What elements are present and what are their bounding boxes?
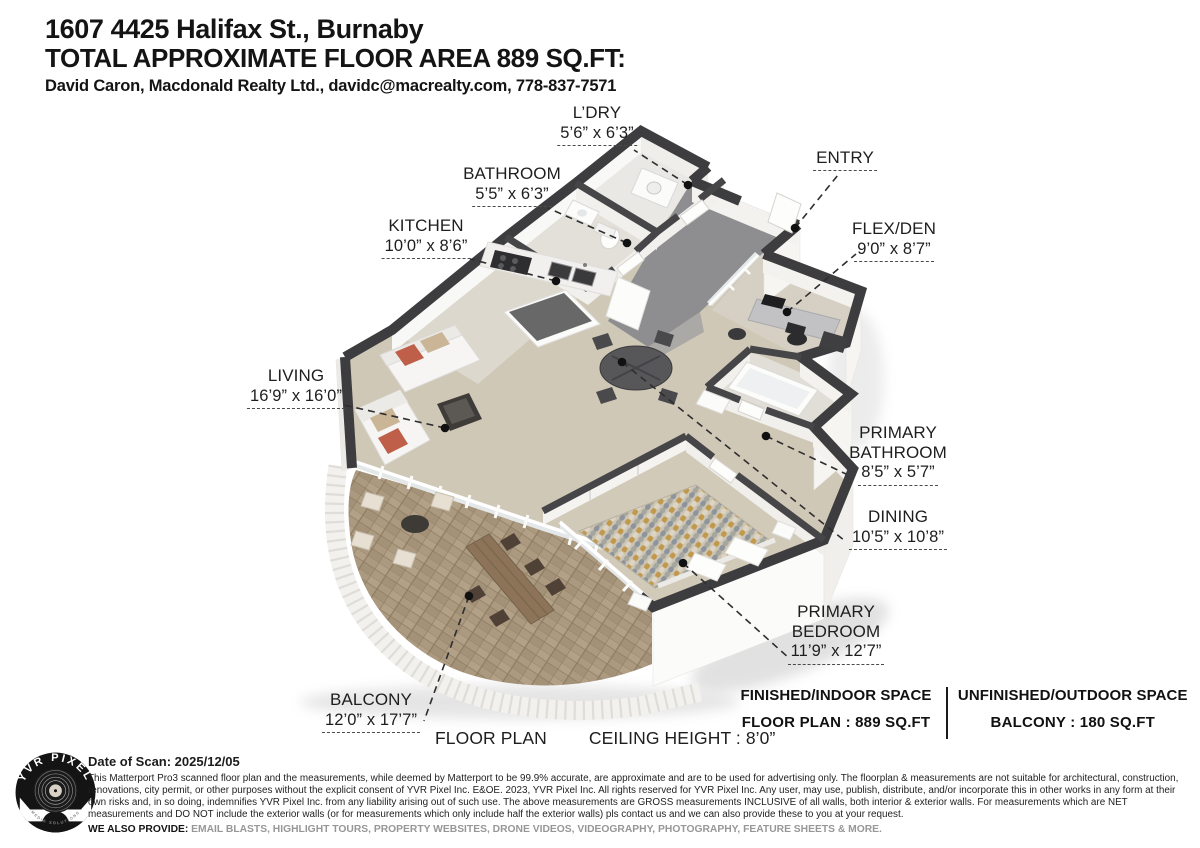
room-label-kitchen: KITCHEN 10’0” x 8’6” xyxy=(382,216,471,259)
indoor-space-title: FINISHED/INDOOR SPACE xyxy=(738,687,934,704)
summary-divider xyxy=(946,687,948,739)
room-label-primary-bathroom: PRIMARY BATHROOM 8’5” x 5’7” xyxy=(834,423,962,486)
logo-icon: YVR PIXEL MEDIA SOLUTIONS xyxy=(13,750,98,835)
patio-table xyxy=(401,515,429,533)
room-label-entry: ENTRY xyxy=(813,147,877,171)
indoor-space-summary: FINISHED/INDOOR SPACE FLOOR PLAN : 889 S… xyxy=(738,687,934,731)
also-provide-items: EMAIL BLASTS, HIGHLIGHT TOURS, PROPERTY … xyxy=(188,824,882,835)
washer-icon xyxy=(647,182,661,194)
area-summary: FINISHED/INDOOR SPACE FLOOR PLAN : 889 S… xyxy=(738,687,1190,739)
page: { "header": { "address": "1607 4425 Hali… xyxy=(0,0,1200,848)
outdoor-space-value: BALCONY : 180 SQ.FT xyxy=(956,714,1191,731)
scan-date: Date of Scan: 2025/12/05 xyxy=(88,754,240,769)
room-label-balcony: BALCONY 12’0” x 17’7” xyxy=(322,690,420,733)
room-label-bathroom: BATHROOM 5’5” x 6’3” xyxy=(463,164,561,207)
indoor-space-value: FLOOR PLAN : 889 SQ.FT xyxy=(738,714,934,731)
room-label-primary-bedroom: PRIMARY BEDROOM 11’9” x 12’7” xyxy=(772,602,900,665)
caption-floor-plan: FLOOR PLAN xyxy=(435,728,547,748)
room-label-living: LIVING 16’9” x 16’0” xyxy=(247,366,345,409)
outdoor-space-summary: UNFINISHED/OUTDOOR SPACE BALCONY : 180 S… xyxy=(956,687,1191,731)
room-label-laundry: L’DRY 5’6” x 6’3” xyxy=(557,103,637,146)
disclaimer-text: This Matterport Pro3 scanned floor plan … xyxy=(88,773,1190,821)
office-chair xyxy=(787,333,807,346)
yvr-pixel-logo: YVR PIXEL MEDIA SOLUTIONS xyxy=(13,750,98,835)
also-provide-line: WE ALSO PROVIDE: EMAIL BLASTS, HIGHLIGHT… xyxy=(88,824,1190,835)
room-label-dining: DINING 10’5” x 10’8” xyxy=(849,507,947,550)
outdoor-space-title: UNFINISHED/OUTDOOR SPACE xyxy=(956,687,1191,704)
room-label-flex-den: FLEX/DEN 9’0” x 8’7” xyxy=(852,219,936,262)
also-provide-label: WE ALSO PROVIDE: xyxy=(88,824,188,835)
